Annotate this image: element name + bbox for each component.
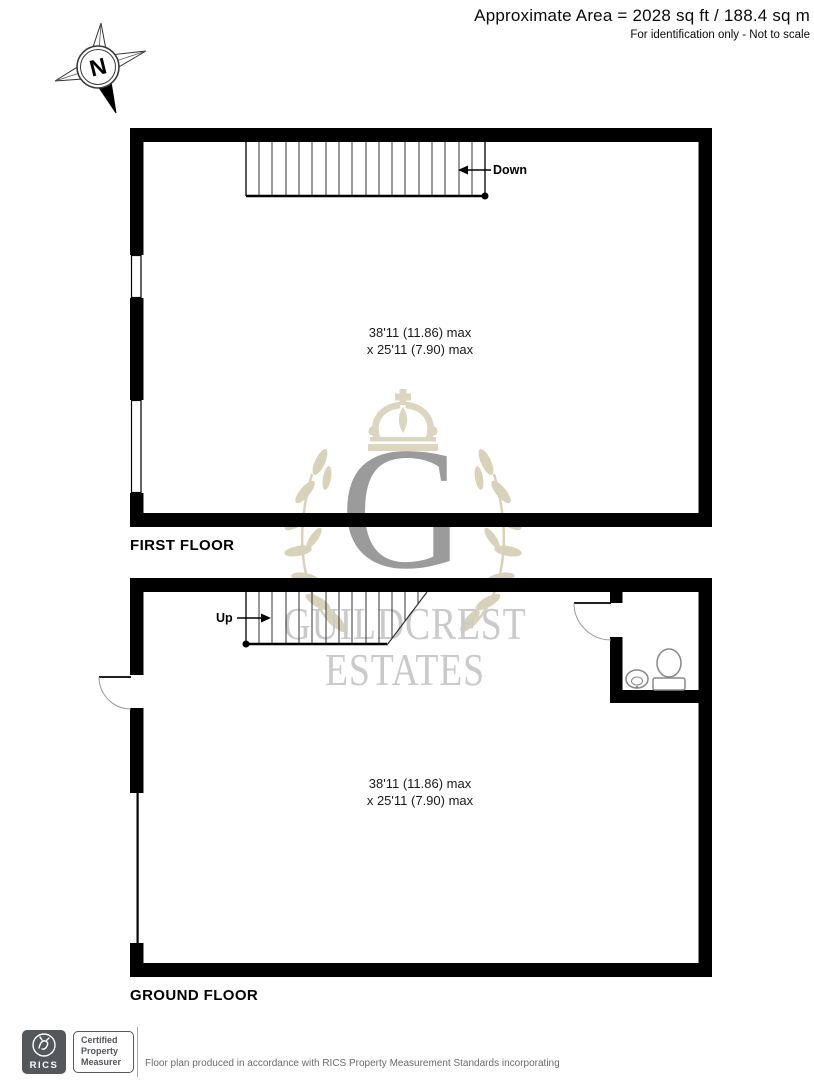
entrance-door-icon xyxy=(99,677,131,709)
footer-divider xyxy=(137,1027,138,1077)
window-icon xyxy=(130,793,145,943)
staircase-icon xyxy=(246,142,489,200)
dimension-line: 38'11 (11.86) max xyxy=(320,325,520,342)
first-floor-dimensions: 38'11 (11.86) max x 25'11 (7.90) max xyxy=(320,325,520,358)
ground-floor-stairs-label: Up xyxy=(216,611,233,625)
down-arrow-icon xyxy=(458,166,491,175)
staircase-icon xyxy=(243,592,428,648)
ground-floor-dimensions: 38'11 (11.86) max x 25'11 (7.90) max xyxy=(320,776,520,809)
rics-org-label: RICS xyxy=(22,1060,66,1071)
cert-line: Measurer xyxy=(81,1057,121,1068)
dimension-line: x 25'11 (7.90) max xyxy=(320,342,520,359)
cert-line: Certified xyxy=(81,1035,121,1046)
bathroom-door-icon xyxy=(574,603,611,640)
window-icon xyxy=(130,255,144,298)
door-opening xyxy=(130,675,145,708)
certified-property-measurer-badge: Certified Property Measurer xyxy=(73,1031,134,1073)
cert-line: Property xyxy=(81,1046,121,1057)
rics-logo: RICS xyxy=(22,1030,66,1074)
footer-notes: Floor plan produced in accordance with R… xyxy=(145,1030,560,1080)
first-floor-stairs-label: Down xyxy=(493,163,527,177)
up-arrow-icon xyxy=(237,614,271,623)
floor-plan-page: Approximate Area = 2028 sq ft / 188.4 sq… xyxy=(0,0,814,1080)
window-icon xyxy=(130,400,144,493)
dimension-line: x 25'11 (7.90) max xyxy=(320,793,520,810)
toilet-icon xyxy=(653,649,685,690)
rics-lion-emblem-icon xyxy=(22,1030,66,1060)
first-floor-label: FIRST FLOOR xyxy=(130,537,234,554)
sink-icon xyxy=(626,670,648,688)
approximate-area-text: Approximate Area = 2028 sq ft / 188.4 sq… xyxy=(474,6,810,26)
ground-floor-label: GROUND FLOOR xyxy=(130,987,258,1004)
dimension-line: 38'11 (11.86) max xyxy=(320,776,520,793)
disclaimer-text: For identification only - Not to scale xyxy=(630,29,810,41)
footer-note-line: Floor plan produced in accordance with R… xyxy=(145,1057,560,1071)
